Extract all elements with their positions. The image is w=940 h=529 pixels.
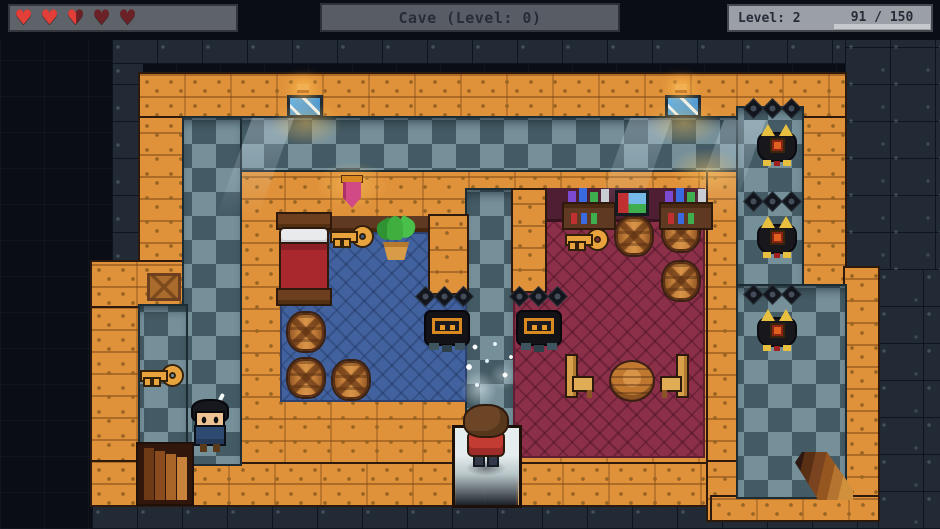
player-shadow xyxy=(466,460,506,476)
barrel xyxy=(288,313,324,351)
barrel xyxy=(288,359,324,397)
wall-bottom-right-b xyxy=(712,497,878,520)
player-legs xyxy=(475,455,483,465)
spike-diamond-row xyxy=(746,101,798,118)
barrel xyxy=(616,217,652,255)
wall-right-outer xyxy=(845,268,878,520)
pink-banner xyxy=(342,176,362,210)
wooden-crate xyxy=(147,273,181,301)
metal-panel-left xyxy=(112,64,143,270)
heart-icon: ♥♥ xyxy=(68,5,92,31)
barrel xyxy=(663,262,699,300)
stair-plank xyxy=(177,457,187,500)
plant-leaf xyxy=(387,216,403,240)
bed-pillow xyxy=(281,229,327,244)
player-hero xyxy=(463,406,509,482)
npc-body xyxy=(196,427,224,444)
xp-text: 91 / 150 xyxy=(834,10,930,25)
bed xyxy=(278,214,330,306)
plant-pot xyxy=(383,242,409,260)
wall-bottom-mid xyxy=(518,462,712,505)
stair-plank xyxy=(155,451,165,500)
xp-progress-bar xyxy=(834,24,930,29)
spike-diamond-row xyxy=(418,289,470,306)
stair-plank xyxy=(166,454,176,500)
player-body xyxy=(469,433,503,455)
heart-icon: ♥♥ xyxy=(16,5,40,31)
chair-leg xyxy=(662,390,667,398)
chair-leg xyxy=(587,390,592,398)
round-table xyxy=(611,362,653,400)
bed-blanket xyxy=(281,244,327,290)
spike-diamond-row xyxy=(746,194,798,211)
chair-seat xyxy=(662,378,680,390)
banner-mount xyxy=(342,176,362,182)
lamp xyxy=(297,84,309,93)
npc-face xyxy=(197,413,223,427)
chair-back xyxy=(678,356,687,396)
barrel xyxy=(333,361,369,399)
bottle-shelf xyxy=(564,188,614,228)
player-hair xyxy=(465,406,507,436)
npc-villager xyxy=(192,401,230,455)
framed-picture xyxy=(615,190,649,216)
bat-enemy xyxy=(759,311,795,353)
banner-cloth xyxy=(343,182,361,208)
bat-enemy xyxy=(759,126,795,168)
heart-icon: ♥♥ xyxy=(42,5,66,31)
bat-enemy xyxy=(759,218,795,260)
potted-plant xyxy=(373,216,419,266)
key-item xyxy=(142,365,182,387)
chair xyxy=(567,356,595,400)
metal-panel-band xyxy=(112,40,940,64)
spike-diamond-row xyxy=(512,289,564,306)
staircase-down-left xyxy=(138,444,192,504)
bottle-shelf xyxy=(661,188,711,228)
lamp xyxy=(675,84,687,93)
chair-back xyxy=(567,356,576,396)
key-item xyxy=(332,226,372,248)
bottles xyxy=(663,188,709,204)
chair xyxy=(659,356,687,400)
gate-enemy xyxy=(518,312,560,350)
game-viewport[interactable]: ♥♥♥♥♥♥♥♥♥♥ Cave (Level: 0) Level: 2 91 /… xyxy=(0,0,940,529)
bed-headboard xyxy=(278,214,330,228)
level-panel: Level: 2 91 / 150 xyxy=(727,4,933,32)
wall-patch-blue-doorway xyxy=(430,216,467,293)
heart-icon: ♥♥ xyxy=(94,5,118,31)
metal-panel-right xyxy=(845,40,940,270)
bottles xyxy=(566,188,612,204)
sparkle-dust-effect xyxy=(461,341,521,405)
health-bar: ♥♥♥♥♥♥♥♥♥♥ xyxy=(8,4,238,32)
light-glow xyxy=(270,100,342,146)
heart-icon: ♥♥ xyxy=(120,5,144,31)
level-label: Level: 2 xyxy=(738,11,801,26)
key-item xyxy=(567,229,607,251)
shelf-wood xyxy=(564,204,614,228)
bed-footboard xyxy=(278,290,330,304)
light-glow xyxy=(648,100,720,146)
spike-diamond-row xyxy=(746,287,798,304)
location-banner-label: Cave (Level: 0) xyxy=(399,9,542,27)
metal-panel-right-low xyxy=(878,270,940,529)
wall-right-corridor xyxy=(802,118,845,286)
shelf-wood xyxy=(661,204,711,228)
wall-patch-red-doorway xyxy=(513,190,545,291)
npc-feet xyxy=(200,444,207,452)
location-banner: Cave (Level: 0) xyxy=(320,3,620,32)
chair-seat xyxy=(574,378,592,390)
stair-plank xyxy=(144,448,154,500)
